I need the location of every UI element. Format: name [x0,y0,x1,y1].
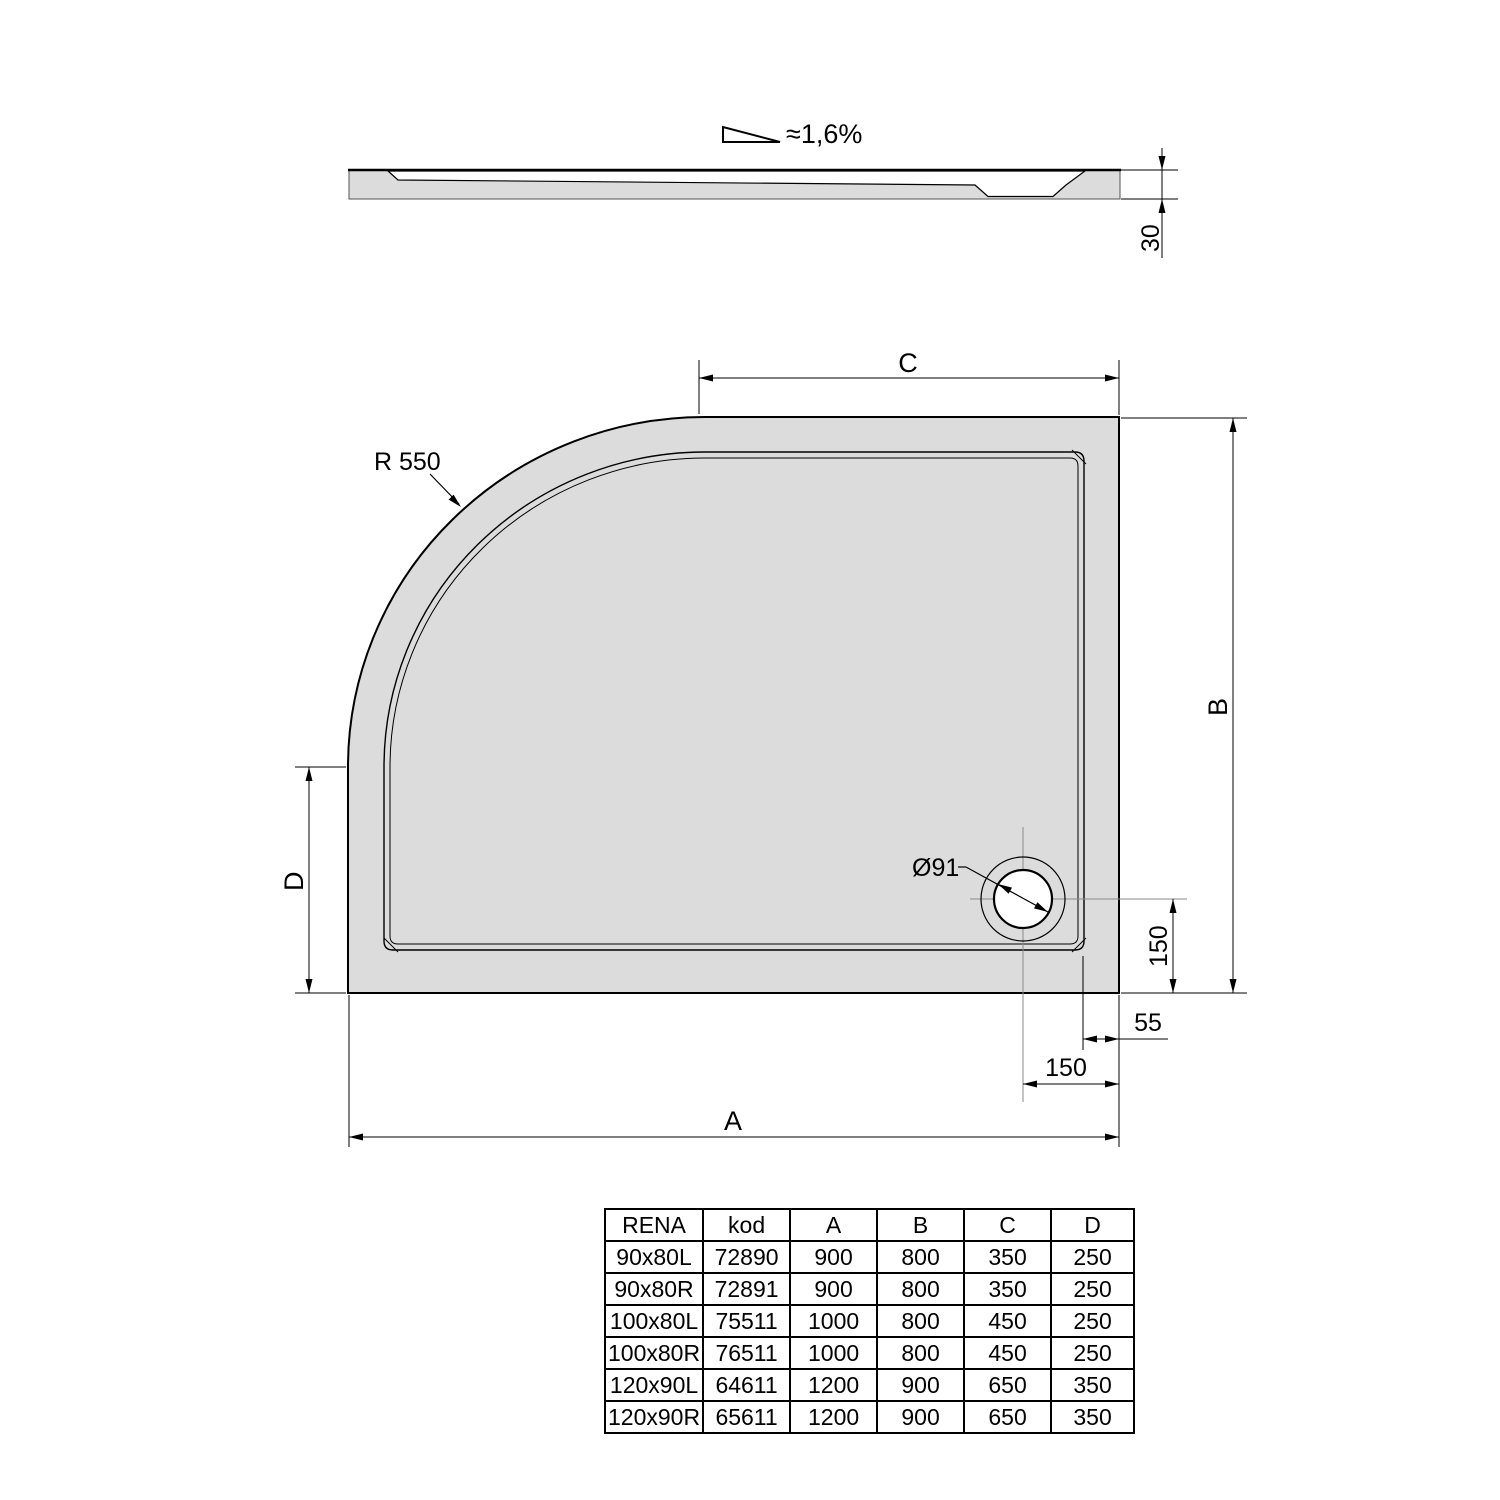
cell-c: 650 [964,1401,1051,1433]
table-row: 100x80R 76511 1000 800 450 250 [605,1337,1134,1369]
cell-b: 800 [877,1337,964,1369]
dim-b: B [1121,418,1247,993]
dim-height-30: 30 [1121,148,1178,258]
cell-c: 350 [964,1241,1051,1273]
header-kod: kod [703,1209,790,1241]
size-spec-table: RENA kod A B C D 90x80L 72890 900 800 35… [604,1208,1135,1434]
cell-size: 120x90L [605,1369,703,1401]
cell-a: 1000 [790,1305,877,1337]
cell-b: 800 [877,1305,964,1337]
cell-size: 100x80L [605,1305,703,1337]
cell-b: 900 [877,1369,964,1401]
header-a: A [790,1209,877,1241]
cell-size: 90x80L [605,1241,703,1273]
cell-kod: 76511 [703,1337,790,1369]
cell-b: 800 [877,1241,964,1273]
radius-callout: R 550 [374,448,461,507]
drain-inner-circle [994,870,1052,928]
dim-c: C [699,348,1119,415]
slope-label: ≈1,6% [786,119,862,149]
dim-b-label: B [1203,698,1233,716]
dim-a: A [349,995,1119,1147]
cell-kod: 64611 [703,1369,790,1401]
table-row: 90x80L 72890 900 800 350 250 [605,1241,1134,1273]
cell-a: 900 [790,1273,877,1305]
cell-a: 1200 [790,1401,877,1433]
cell-d: 250 [1051,1273,1134,1305]
cell-b: 900 [877,1401,964,1433]
cell-a: 1000 [790,1337,877,1369]
cell-kod: 65611 [703,1401,790,1433]
dim-150-horizontal: 150 [1023,1054,1119,1088]
dim-150-vertical-label: 150 [1145,925,1173,967]
drain-diameter-label: Ø91 [912,854,959,882]
header-d: D [1051,1209,1134,1241]
cell-d: 250 [1051,1241,1134,1273]
dim-c-label: C [898,348,918,378]
cell-size: 90x80R [605,1273,703,1305]
cell-a: 900 [790,1241,877,1273]
dim-150-vertical: 150 [1145,899,1177,993]
table-header-row: RENA kod A B C D [605,1209,1134,1241]
slope-symbol-icon [723,127,780,142]
radius-label: R 550 [374,448,441,476]
cell-c: 650 [964,1369,1051,1401]
cell-c: 450 [964,1337,1051,1369]
top-view: Ø91 R 550 C [279,348,1247,1147]
cell-c: 350 [964,1273,1051,1305]
cell-kod: 72890 [703,1241,790,1273]
cell-b: 800 [877,1273,964,1305]
cell-kod: 75511 [703,1305,790,1337]
dim-d: D [279,767,346,993]
table-row: 120x90L 64611 1200 900 650 350 [605,1369,1134,1401]
table-row: 90x80R 72891 900 800 350 250 [605,1273,1134,1305]
header-rena: RENA [605,1209,703,1241]
cell-size: 120x90R [605,1401,703,1433]
cell-a: 1200 [790,1369,877,1401]
cell-d: 250 [1051,1337,1134,1369]
dim-d-label: D [279,872,309,892]
table-row: 120x90R 65611 1200 900 650 350 [605,1401,1134,1433]
table-row: 100x80L 75511 1000 800 450 250 [605,1305,1134,1337]
cell-d: 250 [1051,1305,1134,1337]
header-c: C [964,1209,1051,1241]
cell-d: 350 [1051,1401,1134,1433]
shower-tray-technical-drawing: ≈1,6% 30 [0,0,1500,1500]
header-b: B [877,1209,964,1241]
cell-size: 100x80R [605,1337,703,1369]
dim-55-label: 55 [1134,1009,1162,1037]
cell-c: 450 [964,1305,1051,1337]
dim-150-horizontal-label: 150 [1045,1054,1087,1082]
dim-height-30-label: 30 [1137,224,1165,252]
dim-a-label: A [724,1106,742,1136]
side-view: ≈1,6% 30 [348,119,1178,258]
cell-d: 350 [1051,1369,1134,1401]
cell-kod: 72891 [703,1273,790,1305]
